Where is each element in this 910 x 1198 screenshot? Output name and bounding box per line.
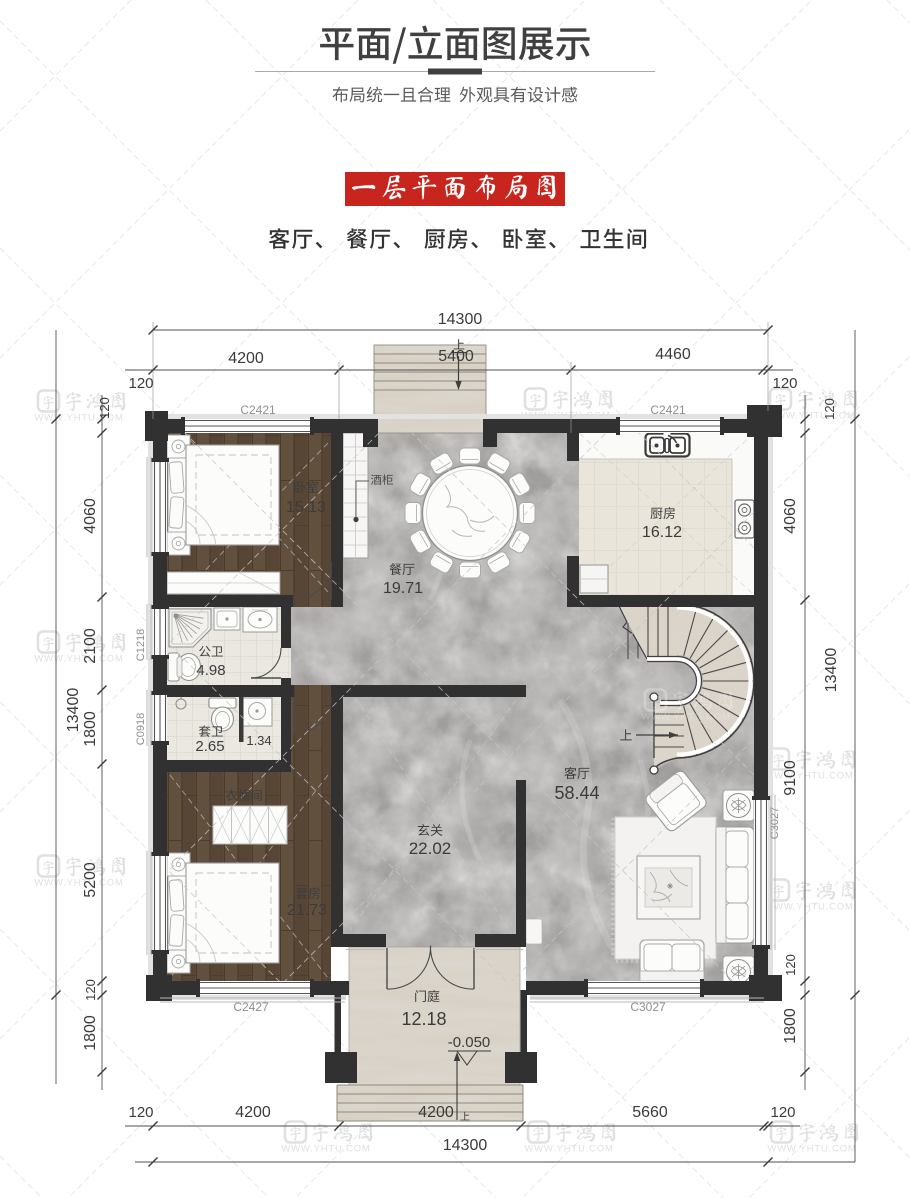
svg-text:WWW.YHTU.COM: WWW.YHTU.COM: [767, 1144, 856, 1155]
svg-text:5200: 5200: [82, 862, 99, 898]
svg-text:-0.050: -0.050: [448, 1034, 491, 1051]
svg-text:4200: 4200: [418, 1104, 454, 1121]
svg-text:WWW.YHTU.COM: WWW.YHTU.COM: [281, 1144, 370, 1155]
svg-text:2100: 2100: [82, 628, 99, 664]
svg-text:9100: 9100: [782, 760, 799, 796]
svg-text:14300: 14300: [443, 1137, 488, 1154]
svg-text:4200: 4200: [228, 350, 264, 367]
svg-text:21.73: 21.73: [287, 902, 327, 919]
svg-text:120: 120: [772, 375, 797, 392]
svg-text:C0918: C0918: [135, 713, 147, 745]
svg-text:12.18: 12.18: [401, 1009, 446, 1029]
svg-text:C3027: C3027: [630, 1000, 666, 1014]
svg-text:4460: 4460: [655, 346, 691, 363]
svg-text:WWW.YHTU.COM: WWW.YHTU.COM: [34, 654, 123, 665]
svg-text:120: 120: [783, 954, 798, 976]
svg-text:120: 120: [770, 1104, 795, 1121]
svg-text:120: 120: [128, 375, 153, 392]
svg-text:13400: 13400: [823, 648, 840, 693]
svg-text:1.34: 1.34: [246, 733, 271, 748]
svg-text:WWW.YHTU.COM: WWW.YHTU.COM: [764, 771, 853, 782]
svg-text:4200: 4200: [235, 1104, 271, 1121]
svg-text:C1218: C1218: [135, 629, 147, 661]
svg-text:22.02: 22.02: [409, 839, 452, 858]
svg-text:4060: 4060: [82, 498, 99, 534]
svg-text:4.98: 4.98: [196, 662, 225, 679]
svg-text:5400: 5400: [438, 348, 474, 365]
svg-text:120: 120: [128, 1104, 153, 1121]
svg-text:WWW.YHTU.COM: WWW.YHTU.COM: [524, 1144, 613, 1155]
svg-text:C2427: C2427: [233, 1000, 269, 1014]
svg-text:4060: 4060: [782, 498, 799, 534]
svg-text:C2421: C2421: [240, 403, 276, 417]
svg-text:5660: 5660: [632, 1104, 668, 1121]
svg-text:13400: 13400: [65, 688, 82, 733]
svg-text:120: 120: [822, 398, 837, 420]
svg-text:120: 120: [97, 397, 112, 419]
svg-text:120: 120: [83, 979, 98, 1001]
svg-text:1800: 1800: [782, 1008, 799, 1044]
svg-text:1800: 1800: [82, 711, 99, 747]
svg-text:WWW.YHTU.COM: WWW.YHTU.COM: [764, 902, 853, 913]
svg-text:WWW.YHTU.COM: WWW.YHTU.COM: [641, 712, 730, 723]
svg-text:1800: 1800: [82, 1015, 99, 1051]
svg-text:14300: 14300: [438, 311, 483, 328]
svg-text:C2421: C2421: [650, 403, 686, 417]
svg-text:58.44: 58.44: [554, 783, 599, 803]
svg-text:19.71: 19.71: [383, 580, 423, 597]
svg-text:WWW.YHTU.COM: WWW.YHTU.COM: [34, 878, 123, 889]
svg-text:15.13: 15.13: [286, 499, 326, 516]
svg-text:2.65: 2.65: [195, 738, 224, 755]
svg-text:C3027: C3027: [769, 807, 781, 839]
svg-text:16.12: 16.12: [642, 524, 682, 541]
